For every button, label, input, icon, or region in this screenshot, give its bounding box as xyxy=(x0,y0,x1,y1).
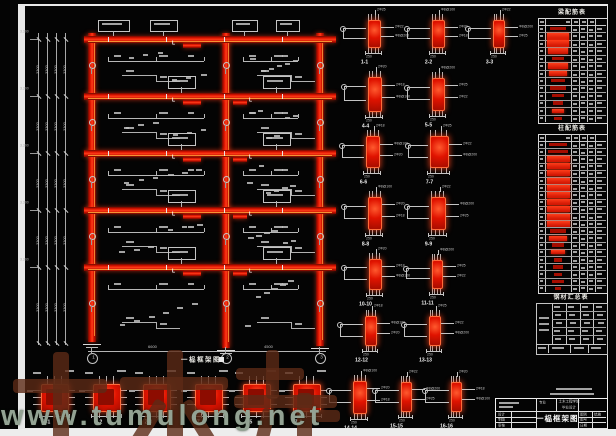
annot-line xyxy=(108,61,204,62)
cad-line xyxy=(580,303,581,344)
foundation-mark xyxy=(311,348,329,349)
leader-flag xyxy=(263,190,291,203)
beam-section xyxy=(353,381,367,414)
text-speck xyxy=(259,165,264,167)
leader-circle xyxy=(339,143,345,149)
text-speck xyxy=(540,216,543,218)
text-speck xyxy=(597,144,602,146)
text-speck xyxy=(573,266,577,268)
cad-line xyxy=(429,114,430,118)
cad-line xyxy=(204,171,205,175)
text-speck xyxy=(272,288,278,290)
text-speck xyxy=(261,184,269,186)
cad-line xyxy=(429,292,430,296)
text-speck xyxy=(573,194,577,196)
cad-line xyxy=(108,114,109,118)
beam-stub-label: L xyxy=(249,98,252,103)
text-speck xyxy=(267,137,283,139)
text-speck xyxy=(589,251,593,253)
leader xyxy=(441,333,454,334)
cad-line xyxy=(108,171,109,175)
table-beam-bar xyxy=(551,250,565,254)
cad-line xyxy=(500,10,501,15)
cad-line xyxy=(538,92,606,93)
beam-stub xyxy=(233,271,247,276)
text-speck xyxy=(581,195,585,197)
text-speck xyxy=(573,50,577,52)
section-width-dim: 250 xyxy=(449,419,455,423)
text-speck xyxy=(597,50,602,52)
text-speck xyxy=(570,322,576,324)
text-speck xyxy=(581,252,585,254)
text-speck xyxy=(573,217,577,219)
table-beam-bar xyxy=(552,243,564,247)
text-speck xyxy=(282,55,288,57)
beam-section xyxy=(429,316,441,346)
text-speck xyxy=(589,159,593,161)
text-speck xyxy=(261,70,266,72)
text-speck xyxy=(249,169,256,171)
text-speck xyxy=(168,229,173,231)
tiny-text: 2Φ22 xyxy=(457,274,466,278)
text-speck xyxy=(160,133,167,135)
text-speck xyxy=(589,59,593,61)
table-beam-bar xyxy=(547,185,570,191)
text-speck xyxy=(573,223,577,225)
annot-step xyxy=(257,322,291,323)
text-speck xyxy=(539,317,549,319)
cad-line xyxy=(381,51,382,55)
tiny-text: Φ8@100 xyxy=(441,8,455,12)
leader xyxy=(407,87,430,88)
tiny-text: 2Φ20 xyxy=(378,65,387,69)
leader-circle xyxy=(340,26,346,32)
text-speck xyxy=(582,306,588,308)
leader xyxy=(340,336,363,337)
beam-stub-label: L xyxy=(172,98,175,103)
cad-line xyxy=(382,293,383,297)
text-speck xyxy=(295,247,302,249)
table-beam-bar xyxy=(547,163,570,169)
tiny-text: 2Φ25 xyxy=(519,34,528,38)
text-speck xyxy=(573,165,577,167)
text-speck xyxy=(540,102,543,104)
text-speck xyxy=(573,29,577,31)
text-speck xyxy=(245,325,251,327)
leader xyxy=(445,36,458,37)
dim-chain xyxy=(38,33,39,345)
leader xyxy=(468,38,491,39)
leader xyxy=(462,389,475,390)
cad-line xyxy=(538,85,606,86)
beam-section xyxy=(369,259,382,290)
tiny-text: 2Φ25 xyxy=(457,264,466,268)
title-block-title: 一榀框架图 xyxy=(536,415,578,423)
text-speck xyxy=(126,241,134,243)
storey-dim: 3300 xyxy=(63,122,67,131)
table-beam-bar xyxy=(552,109,564,113)
cad-line xyxy=(319,182,320,188)
beam-highlight xyxy=(88,98,332,99)
dim-line xyxy=(363,173,381,174)
cad-line xyxy=(30,210,38,211)
beam-stub xyxy=(183,214,201,219)
text-speck xyxy=(196,169,202,171)
leader xyxy=(462,399,475,400)
dim-line xyxy=(365,53,382,54)
bottom-dim-line xyxy=(88,351,324,352)
cad-line xyxy=(446,233,447,237)
text-speck xyxy=(153,177,158,179)
text-speck xyxy=(589,165,593,167)
annot-line xyxy=(108,232,204,233)
beam-tick xyxy=(282,208,283,213)
cad-line xyxy=(298,114,299,118)
text-speck xyxy=(573,260,577,262)
cad-line xyxy=(204,57,205,61)
cad-line xyxy=(243,228,244,232)
beam-tick xyxy=(224,151,225,156)
leader xyxy=(380,144,393,145)
level-dim: 3.300 xyxy=(20,258,29,262)
text-speck xyxy=(250,112,255,114)
column-highlight xyxy=(228,36,229,342)
text-speck xyxy=(574,21,578,23)
annot-line xyxy=(243,175,298,176)
cad-line xyxy=(225,125,226,131)
section-label: 9-9 xyxy=(420,242,437,247)
text-speck xyxy=(573,110,577,112)
text-speck xyxy=(573,80,577,82)
cad-line xyxy=(291,328,315,329)
leader xyxy=(425,402,449,403)
tiny-text: 2Φ18 xyxy=(476,387,485,391)
text-speck xyxy=(573,202,577,204)
beam-stub-label: L xyxy=(172,155,175,160)
text-speck xyxy=(581,267,585,269)
cad-line xyxy=(538,227,606,228)
dim-chain xyxy=(47,33,48,345)
bay-dim: 4500 xyxy=(264,345,273,349)
section-label: 6-6 xyxy=(355,180,372,185)
table-beam-bar xyxy=(550,86,566,90)
storey-dim: 3300 xyxy=(36,236,40,245)
text-speck xyxy=(540,73,543,75)
text-speck xyxy=(589,237,593,239)
text-speck xyxy=(573,44,577,46)
leader xyxy=(344,218,366,219)
text-speck xyxy=(172,137,188,139)
text-speck xyxy=(573,145,577,147)
text-speck xyxy=(540,259,543,261)
cad-line xyxy=(382,115,383,119)
cad-line xyxy=(225,68,226,74)
section-label: 4-4 xyxy=(357,124,374,129)
storey-dim: 3300 xyxy=(54,122,58,131)
tiny-text: Φ8@200 xyxy=(455,331,469,335)
dim-line xyxy=(429,53,446,54)
beam-tick xyxy=(282,151,283,156)
text-speck xyxy=(540,201,543,203)
text-speck xyxy=(581,102,585,104)
table-beam-bar xyxy=(547,33,569,40)
tiny-text: 2Φ22 xyxy=(395,25,404,29)
text-speck xyxy=(159,226,168,228)
tiny-text: 2Φ25 xyxy=(459,83,468,87)
text-speck xyxy=(573,103,577,105)
tiny-text: Φ8@100 xyxy=(396,95,410,99)
leader-circle xyxy=(341,84,347,90)
text-speck xyxy=(269,68,274,70)
tiny-text: Φ8@200 xyxy=(463,153,477,157)
text-speck xyxy=(597,259,602,261)
border-top xyxy=(18,4,608,6)
text-speck xyxy=(540,21,544,23)
flag-drop xyxy=(287,31,288,36)
cad-line xyxy=(243,114,244,118)
tiny-text: Φ8@100 xyxy=(378,185,392,189)
cad-line xyxy=(156,285,157,289)
table-beam-bar xyxy=(548,48,568,54)
leader xyxy=(380,155,393,156)
text-speck xyxy=(295,323,302,325)
level-dim: 3.300 xyxy=(20,30,29,34)
leader-flag xyxy=(263,247,291,260)
text-speck xyxy=(574,137,578,139)
cad-line xyxy=(538,256,606,257)
section-label: 11-11 xyxy=(419,301,436,306)
text-speck xyxy=(581,244,585,246)
text-speck xyxy=(597,244,602,246)
text-speck xyxy=(219,370,228,372)
leader-flag xyxy=(150,20,178,32)
cad-line xyxy=(457,372,458,377)
storey-dim: 3300 xyxy=(63,179,67,188)
section-width-dim: 250 xyxy=(366,55,372,59)
dim-line xyxy=(429,294,444,295)
text-speck xyxy=(589,266,593,268)
cad-line xyxy=(108,228,109,232)
text-speck xyxy=(540,110,543,112)
section-label: 2-2 xyxy=(420,60,437,65)
cad-sheet: 梁配筋表 柱配筋表 钢材汇总表 一榀框架图 www.tumulong.net 1… xyxy=(0,0,616,436)
cad-line xyxy=(291,81,315,82)
cad-line xyxy=(548,344,549,353)
text-speck xyxy=(573,118,577,120)
cad-line xyxy=(319,306,320,312)
section-label: 3-3 xyxy=(481,60,498,65)
cad-line xyxy=(380,171,381,175)
leader-circle xyxy=(372,388,378,394)
text-speck xyxy=(556,322,562,324)
text-speck xyxy=(163,312,169,314)
watermark-url-text: www.tumulong.net xyxy=(1,400,323,433)
text-speck xyxy=(540,230,543,232)
storey-dim: 3300 xyxy=(36,179,40,188)
section-label: 1-1 xyxy=(356,60,373,65)
dim-line xyxy=(362,351,378,352)
foundation-mark xyxy=(83,344,101,345)
cad-line xyxy=(225,306,226,312)
text-speck xyxy=(317,370,326,372)
beam-tick xyxy=(282,265,283,270)
text-speck xyxy=(188,55,194,57)
text-speck xyxy=(540,151,543,153)
text-speck xyxy=(581,259,585,261)
text-speck xyxy=(540,144,543,146)
text-speck xyxy=(554,306,560,308)
text-speck xyxy=(148,246,154,248)
beam-table-title: 梁配筋表 xyxy=(538,9,606,15)
storey-dim: 3300 xyxy=(45,303,49,312)
beam-tick xyxy=(282,37,283,42)
text-speck xyxy=(261,127,269,129)
cad-line xyxy=(298,171,299,175)
beam-stub-label: L xyxy=(249,212,252,217)
beam-highlight xyxy=(88,269,332,270)
text-speck xyxy=(581,181,585,183)
text-speck xyxy=(584,322,590,324)
cad-line xyxy=(538,77,606,78)
annot-step xyxy=(122,189,156,190)
text-speck xyxy=(201,129,206,131)
section-label: 12-12 xyxy=(353,358,370,363)
tiny-text: Φ8@100 xyxy=(476,397,490,401)
text-speck xyxy=(589,288,593,290)
leader xyxy=(329,390,351,391)
leader-circle xyxy=(404,204,410,210)
text-speck xyxy=(556,388,592,390)
text-speck xyxy=(583,314,589,316)
cad-line xyxy=(319,68,320,74)
leader xyxy=(342,145,364,146)
tiny-text: 2Φ18 xyxy=(374,304,383,308)
level-dim: 3.300 xyxy=(20,201,29,205)
text-speck xyxy=(85,372,93,374)
beam-tick xyxy=(224,94,225,99)
text-speck xyxy=(129,390,135,392)
text-speck xyxy=(114,112,121,114)
leader xyxy=(343,38,366,39)
beam-section xyxy=(430,136,449,168)
text-speck xyxy=(597,110,602,112)
text-speck xyxy=(590,137,594,139)
text-speck xyxy=(573,173,577,175)
watermark-brand-stroke xyxy=(266,350,279,399)
flag-drop xyxy=(113,31,114,36)
text-speck xyxy=(581,158,585,160)
cad-line xyxy=(445,114,446,118)
text-speck xyxy=(182,226,187,228)
text-speck xyxy=(597,87,602,89)
cad-line xyxy=(449,171,450,175)
cad-line xyxy=(538,249,606,250)
cad-line xyxy=(366,293,367,297)
cad-line xyxy=(372,306,373,311)
table-beam-bar xyxy=(549,71,567,76)
cad-line xyxy=(511,411,512,428)
level-dim: 3.300 xyxy=(20,144,29,148)
cad-line xyxy=(536,398,537,428)
table-beam-bar xyxy=(548,150,568,153)
text-speck xyxy=(114,55,121,57)
cad-line xyxy=(91,182,92,188)
dim-line xyxy=(448,417,463,418)
cad-line xyxy=(91,68,92,74)
text-speck xyxy=(596,306,602,308)
text-speck xyxy=(581,273,585,275)
table-beam-bar xyxy=(549,143,567,146)
beam-tick xyxy=(166,208,167,213)
text-speck xyxy=(248,237,254,239)
foundation-mark xyxy=(86,347,98,348)
text-speck xyxy=(540,208,543,210)
leader xyxy=(425,390,449,391)
text-speck xyxy=(596,330,602,332)
beam-tick xyxy=(108,265,109,270)
cad-line xyxy=(538,107,606,108)
table-beam-bar xyxy=(552,280,564,283)
tiny-text: Φ8@200 xyxy=(440,248,454,252)
cad-line xyxy=(566,303,567,344)
cad-line xyxy=(276,201,277,207)
annot-line xyxy=(108,175,204,176)
text-speck xyxy=(573,208,577,210)
leader xyxy=(408,157,428,158)
caption-scale-square xyxy=(219,357,224,362)
text-speck xyxy=(159,55,168,57)
text-speck xyxy=(540,251,543,253)
section-label: 14-14 xyxy=(342,426,359,431)
text-speck xyxy=(267,194,283,196)
cad-line xyxy=(291,252,315,253)
text-speck xyxy=(573,180,577,182)
text-speck xyxy=(573,65,577,67)
leader xyxy=(407,28,430,29)
leader-flag xyxy=(232,20,258,32)
storey-dim: 3300 xyxy=(45,65,49,74)
text-speck xyxy=(597,187,602,189)
dim-chain xyxy=(65,33,66,345)
text-speck xyxy=(589,260,593,262)
text-speck xyxy=(550,393,594,395)
text-speck xyxy=(581,43,585,45)
dim-chain xyxy=(56,33,57,345)
text-speck xyxy=(555,314,561,316)
text-speck xyxy=(581,81,585,83)
dim-line xyxy=(490,53,506,54)
text-speck xyxy=(192,303,198,305)
dim-line xyxy=(428,235,447,236)
leader xyxy=(381,27,394,28)
text-speck xyxy=(573,59,577,61)
text-speck xyxy=(581,117,585,119)
text-speck xyxy=(589,80,593,82)
leader xyxy=(505,36,518,37)
table-beam-bar xyxy=(554,117,562,120)
tiny-text: 2Φ22 xyxy=(455,321,464,325)
beam-tick xyxy=(166,265,167,270)
text-speck xyxy=(264,232,270,234)
text-speck xyxy=(159,112,168,114)
text-speck xyxy=(124,182,129,184)
dim-line xyxy=(398,417,413,418)
text-speck xyxy=(188,112,194,114)
leader xyxy=(375,402,399,403)
text-speck xyxy=(597,28,602,30)
table-beam-bar xyxy=(547,206,570,212)
text-speck xyxy=(573,245,577,247)
